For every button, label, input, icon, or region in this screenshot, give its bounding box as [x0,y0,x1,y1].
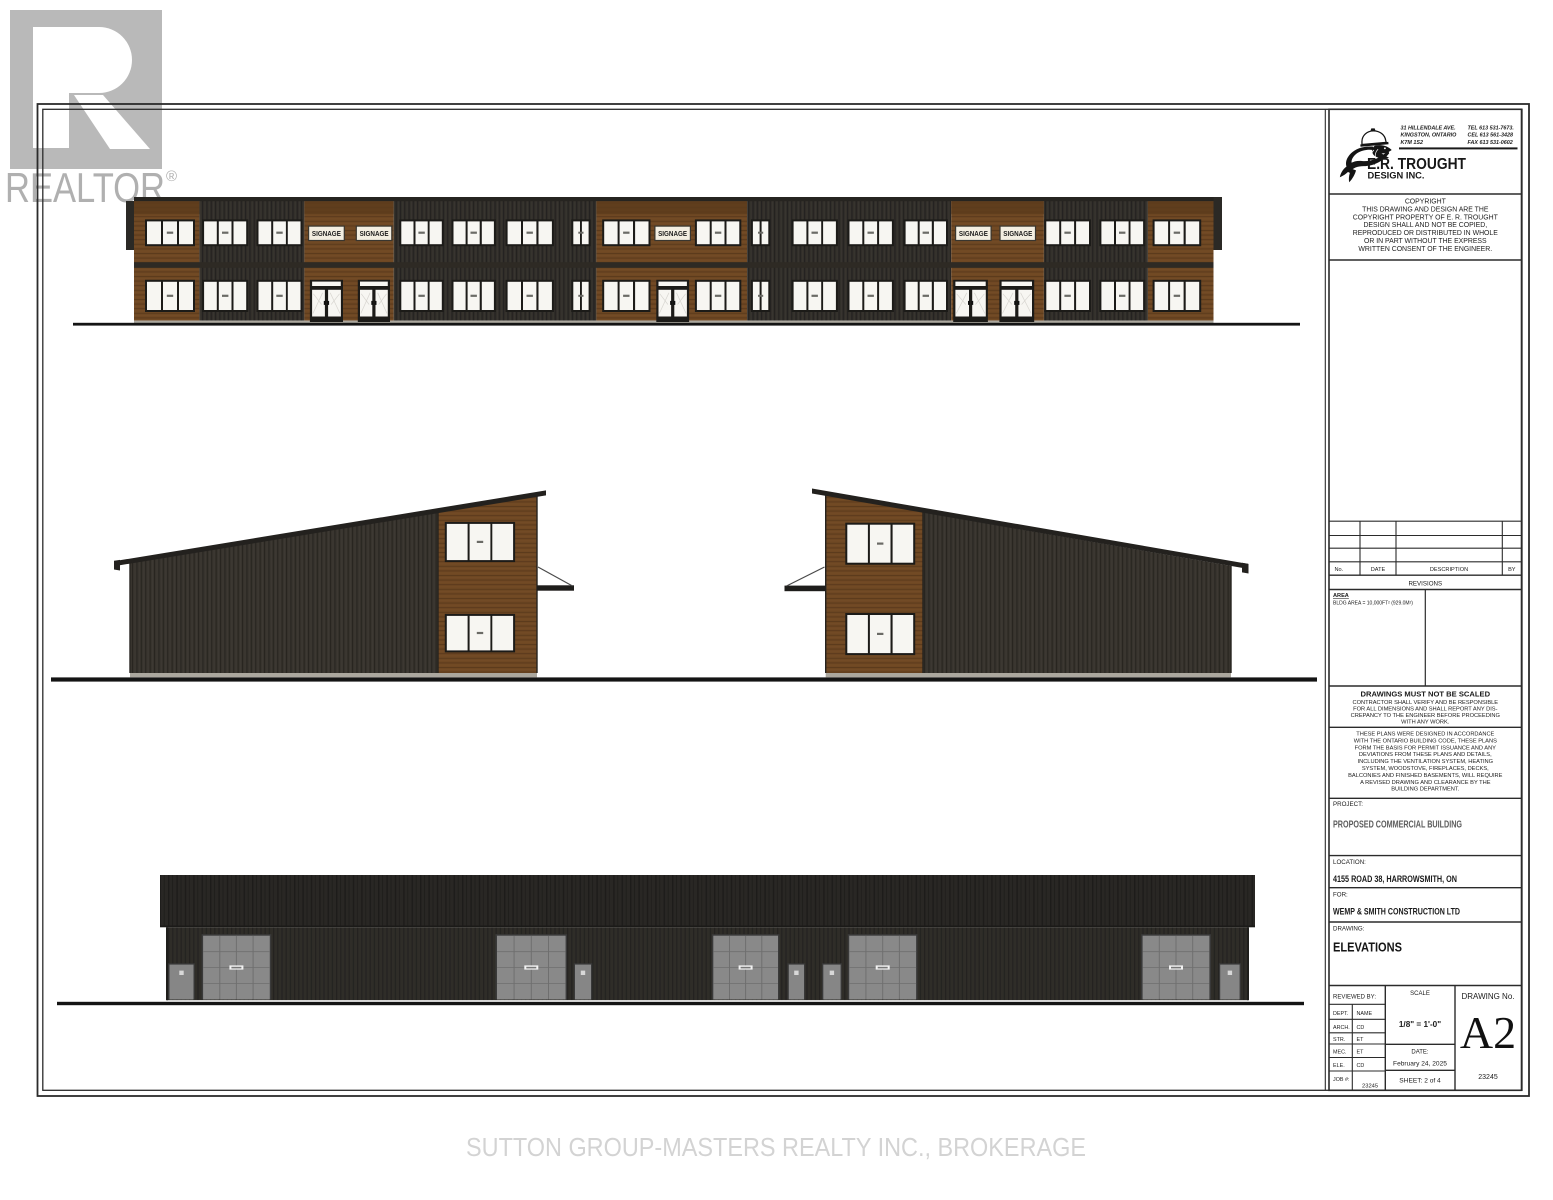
svg-text:SUTTON GROUP-MASTERS REALTY IN: SUTTON GROUP-MASTERS REALTY INC., BROKER… [466,1132,1086,1162]
svg-text:®: ® [166,168,177,185]
svg-text:STR.: STR. [1333,1037,1345,1043]
svg-text:BLDG AREA = 10,000FT² (929.0M²: BLDG AREA = 10,000FT² (929.0M²) [1333,601,1413,607]
svg-text:ET: ET [1357,1050,1365,1056]
svg-text:REVIEWED BY:: REVIEWED BY: [1333,995,1376,1001]
svg-text:ET: ET [1357,1037,1365,1043]
svg-text:CD: CD [1357,1063,1365,1069]
svg-text:ARCH.: ARCH. [1333,1025,1350,1031]
svg-text:FAX 613 531-0602: FAX 613 531-0602 [1468,140,1513,146]
svg-text:FOR ALL DIMENSIONS AND SHALL R: FOR ALL DIMENSIONS AND SHALL REPORT ANY … [1353,707,1497,713]
svg-text:THIS DRAWING AND DESIGN ARE TH: THIS DRAWING AND DESIGN ARE THE [1362,206,1489,213]
svg-text:SIGNAGE: SIGNAGE [959,229,988,238]
svg-text:23245: 23245 [1362,1084,1378,1090]
svg-text:SCALE: SCALE [1410,991,1430,997]
svg-text:KINGSTON, ONTARIO: KINGSTON, ONTARIO [1401,133,1458,139]
svg-text:31 HILLENDALE AVE.: 31 HILLENDALE AVE. [1401,126,1457,132]
svg-text:A2: A2 [1460,1007,1516,1058]
svg-text:REPRODUCED OR DISTRIBUTED IN W: REPRODUCED OR DISTRIBUTED IN WHOLE [1353,230,1499,237]
svg-text:WITH THE ONTARIO BUILDING CODE: WITH THE ONTARIO BUILDING CODE, THESE PL… [1354,738,1497,744]
svg-text:ELEVATIONS: ELEVATIONS [1333,941,1402,955]
svg-text:NAME: NAME [1357,1011,1373,1017]
svg-text:4155 ROAD 38, HARROWSMITH, ON: 4155 ROAD 38, HARROWSMITH, ON [1333,874,1457,884]
svg-text:JOB #:: JOB #: [1333,1077,1349,1083]
svg-text:DATE: DATE [1371,567,1386,573]
svg-text:OR IN PART WITHOUT THE EXPRESS: OR IN PART WITHOUT THE EXPRESS [1364,238,1487,245]
svg-text:February 24, 2025: February 24, 2025 [1393,1061,1447,1068]
svg-text:FOR:: FOR: [1333,892,1348,899]
svg-text:23245: 23245 [1478,1074,1498,1081]
svg-text:LOCATION:: LOCATION: [1333,859,1366,866]
svg-text:PROPOSED COMMERCIAL BUILDING: PROPOSED COMMERCIAL BUILDING [1333,820,1462,831]
svg-text:COPYRIGHT PROPERTY OF E. R. TR: COPYRIGHT PROPERTY OF E. R. TROUGHT [1353,214,1499,221]
svg-text:CREPANCY TO THE ENGINEER BEFOR: CREPANCY TO THE ENGINEER BEFORE PROCEEDI… [1351,713,1500,719]
svg-text:FORM THE BASIS FOR PERMIT ISSU: FORM THE BASIS FOR PERMIT ISSUANCE AND A… [1355,745,1497,751]
svg-text:SIGNAGE: SIGNAGE [360,229,389,238]
svg-text:DESCRIPTION: DESCRIPTION [1430,567,1468,573]
svg-text:No.: No. [1335,567,1344,573]
svg-text:CONTRACTOR SHALL VERIFY AND BE: CONTRACTOR SHALL VERIFY AND BE RESPONSIB… [1352,700,1498,706]
svg-text:DRAWINGS MUST NOT BE SCALED: DRAWINGS MUST NOT BE SCALED [1361,690,1491,699]
svg-text:THESE PLANS WERE DESIGNED IN A: THESE PLANS WERE DESIGNED IN ACCORDANCE [1356,732,1494,738]
svg-text:ELE.: ELE. [1333,1063,1345,1069]
svg-text:WEMP & SMITH CONSTRUCTION LTD: WEMP & SMITH CONSTRUCTION LTD [1333,907,1460,917]
svg-text:SIGNAGE: SIGNAGE [658,229,687,238]
svg-text:A REVISED DRAWING AND CLEARANC: A REVISED DRAWING AND CLEARANCE BY THE [1360,780,1491,786]
svg-text:SYSTEM, WOODSTOVE, FIREPLACES,: SYSTEM, WOODSTOVE, FIREPLACES, DECKS, [1362,766,1489,772]
svg-text:AREA: AREA [1333,593,1349,599]
svg-text:K7M 1S2: K7M 1S2 [1401,140,1423,146]
svg-text:TEL 613 531-7673.: TEL 613 531-7673. [1468,126,1515,132]
svg-text:INCLUDING THE VENTILATION SYST: INCLUDING THE VENTILATION SYSTEM, HEATIN… [1358,759,1494,765]
svg-text:DEVIATIONS FROM THESE PLANS AN: DEVIATIONS FROM THESE PLANS AND DETAILS, [1359,752,1492,758]
svg-text:DRAWING No.: DRAWING No. [1461,992,1514,1001]
svg-text:1/8" = 1'-0": 1/8" = 1'-0" [1399,1020,1441,1029]
svg-text:CEL 613 561-3428: CEL 613 561-3428 [1468,133,1513,139]
svg-text:SHEET: 2 of 4: SHEET: 2 of 4 [1399,1078,1441,1085]
svg-text:SIGNAGE: SIGNAGE [312,229,341,238]
svg-text:DESIGN SHALL AND NOT BE COPIED: DESIGN SHALL AND NOT BE COPIED, [1363,222,1487,229]
svg-text:DRAWING:: DRAWING: [1333,926,1365,933]
svg-text:WRITTEN CONSENT OF THE ENGINEE: WRITTEN CONSENT OF THE ENGINEER. [1358,246,1492,253]
svg-text:REVISIONS: REVISIONS [1408,580,1442,587]
svg-text:BUILDING DEPARTMENT.: BUILDING DEPARTMENT. [1391,787,1459,793]
svg-text:PROJECT:: PROJECT: [1333,801,1363,808]
svg-text:CD: CD [1357,1025,1365,1031]
svg-text:DESIGN INC.: DESIGN INC. [1368,171,1425,182]
svg-text:WITH ANY WORK.: WITH ANY WORK. [1401,719,1450,725]
svg-text:MEC.: MEC. [1333,1050,1346,1056]
svg-text:BY: BY [1508,567,1516,573]
svg-text:DATE:: DATE: [1411,1050,1429,1056]
svg-text:SIGNAGE: SIGNAGE [1003,229,1032,238]
svg-text:BALCONIES AND FINISHED BASEMEN: BALCONIES AND FINISHED BASEMENTS, WILL R… [1348,773,1503,779]
svg-text:DEPT.: DEPT. [1333,1011,1348,1017]
svg-text:COPYRIGHT: COPYRIGHT [1405,199,1447,206]
